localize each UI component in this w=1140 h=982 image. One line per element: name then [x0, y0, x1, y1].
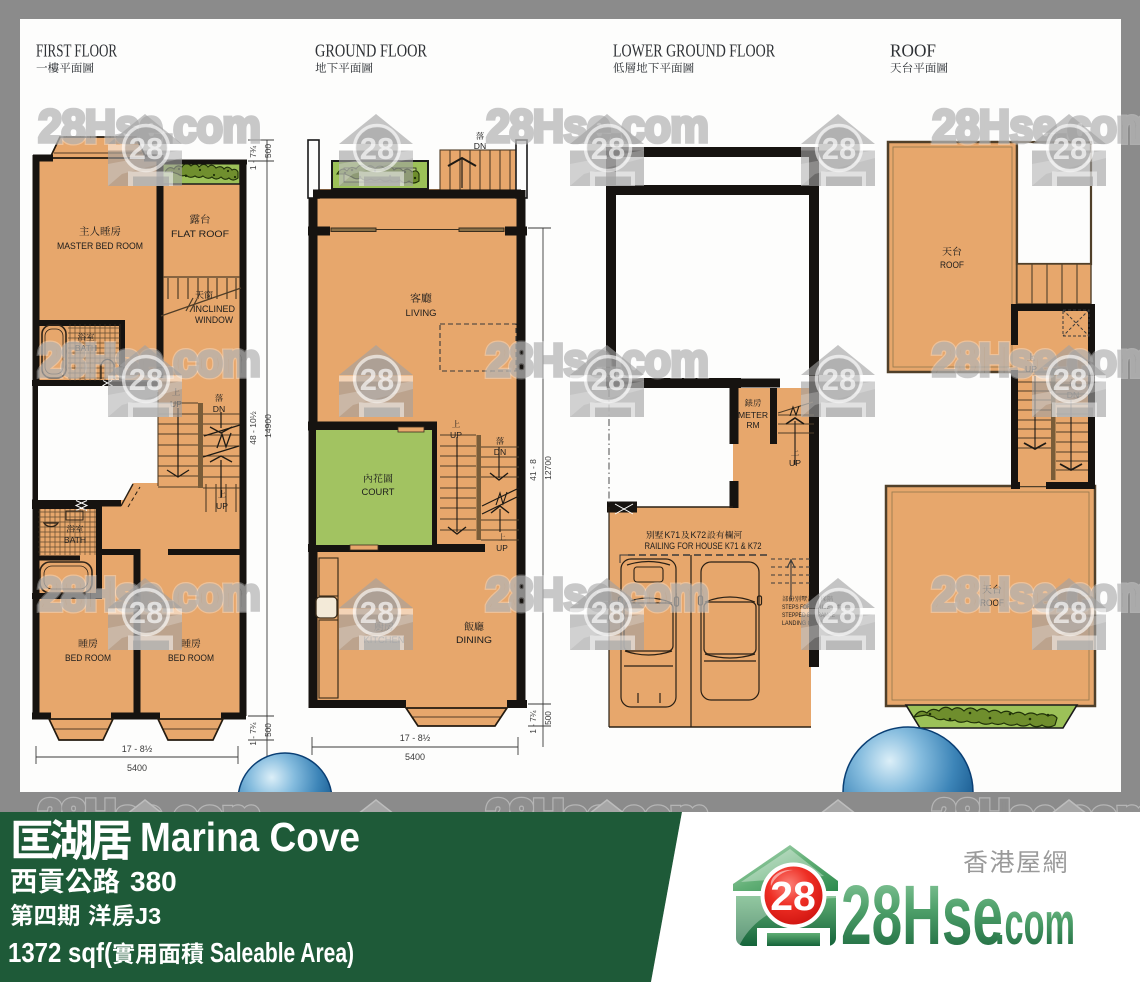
svg-text:380: 380: [130, 866, 177, 897]
svg-text:COURT: COURT: [362, 487, 395, 497]
svg-text:28: 28: [129, 362, 163, 397]
svg-text:BATH: BATH: [64, 535, 86, 545]
svg-text:LOWER GROUND FLOOR: LOWER GROUND FLOOR: [613, 41, 775, 61]
svg-text:28: 28: [822, 131, 856, 166]
svg-text:28: 28: [129, 131, 163, 166]
svg-text:DINING: DINING: [456, 635, 492, 645]
svg-text:28: 28: [591, 595, 625, 630]
svg-text:.com: .com: [995, 890, 1075, 957]
svg-text:J3: J3: [135, 903, 161, 929]
svg-text:RM: RM: [746, 420, 759, 430]
svg-text:28: 28: [1053, 362, 1087, 397]
svg-text:DN: DN: [213, 404, 225, 414]
svg-text:UP: UP: [496, 543, 508, 553]
svg-text:1 - 7¾: 1 - 7¾: [529, 710, 538, 733]
svg-text:28Hse: 28Hse: [841, 868, 1003, 962]
svg-text:Marina Cove: Marina Cove: [140, 814, 360, 860]
svg-text:14900: 14900: [263, 414, 273, 438]
svg-text:28: 28: [1053, 131, 1087, 166]
svg-text:GROUND FLOOR: GROUND FLOOR: [315, 41, 427, 61]
svg-text:1 - 7¾: 1 - 7¾: [249, 722, 258, 745]
svg-text:5400: 5400: [405, 752, 425, 762]
svg-text:BED ROOM: BED ROOM: [168, 653, 214, 663]
svg-text:INCLINED: INCLINED: [193, 304, 235, 314]
svg-text:17 - 8½: 17 - 8½: [400, 733, 431, 743]
svg-text:UP: UP: [789, 458, 801, 468]
svg-text:28: 28: [360, 595, 394, 630]
svg-text:41 - 8: 41 - 8: [528, 459, 538, 481]
svg-text:28: 28: [822, 595, 856, 630]
svg-text:28Hse.com: 28Hse.com: [932, 100, 1140, 152]
svg-text:5400: 5400: [127, 763, 147, 773]
svg-text:WINDOW: WINDOW: [195, 315, 234, 325]
svg-text:48 - 10½: 48 - 10½: [248, 411, 258, 445]
svg-text:500: 500: [544, 711, 553, 725]
svg-text:28: 28: [770, 873, 816, 919]
svg-text:METER: METER: [738, 410, 768, 420]
svg-text:LIVING: LIVING: [406, 308, 437, 318]
svg-text:DN: DN: [474, 141, 486, 151]
svg-text:500: 500: [264, 723, 273, 737]
svg-text:K71: K71: [665, 530, 681, 540]
svg-text:28: 28: [822, 362, 856, 397]
svg-text:28: 28: [360, 131, 394, 166]
svg-text:ROOF: ROOF: [890, 41, 936, 61]
svg-text:MASTER BED ROOM: MASTER BED ROOM: [57, 241, 143, 251]
svg-text:28: 28: [591, 362, 625, 397]
svg-text:17 - 8½: 17 - 8½: [122, 744, 153, 754]
svg-text:UP: UP: [216, 501, 228, 511]
svg-text:28: 28: [360, 362, 394, 397]
svg-text:28: 28: [1053, 595, 1087, 630]
svg-text:FLAT ROOF: FLAT ROOF: [171, 229, 229, 239]
svg-text:500: 500: [263, 144, 273, 158]
svg-text:FIRST FLOOR: FIRST FLOOR: [36, 41, 117, 61]
svg-text:28: 28: [129, 595, 163, 630]
svg-text:1372 sqf(: 1372 sqf(: [8, 937, 113, 968]
svg-text:12700: 12700: [543, 456, 553, 480]
svg-text:UP: UP: [450, 430, 462, 440]
svg-text:RAILING FOR HOUSE K71 & K72: RAILING FOR HOUSE K71 & K72: [645, 541, 762, 551]
svg-text:BED ROOM: BED ROOM: [65, 653, 111, 663]
svg-text:K72: K72: [691, 530, 707, 540]
svg-text:ROOF: ROOF: [940, 260, 964, 270]
svg-text:DN: DN: [494, 447, 506, 457]
svg-text:28: 28: [591, 131, 625, 166]
svg-text:Saleable Area): Saleable Area): [210, 937, 354, 968]
